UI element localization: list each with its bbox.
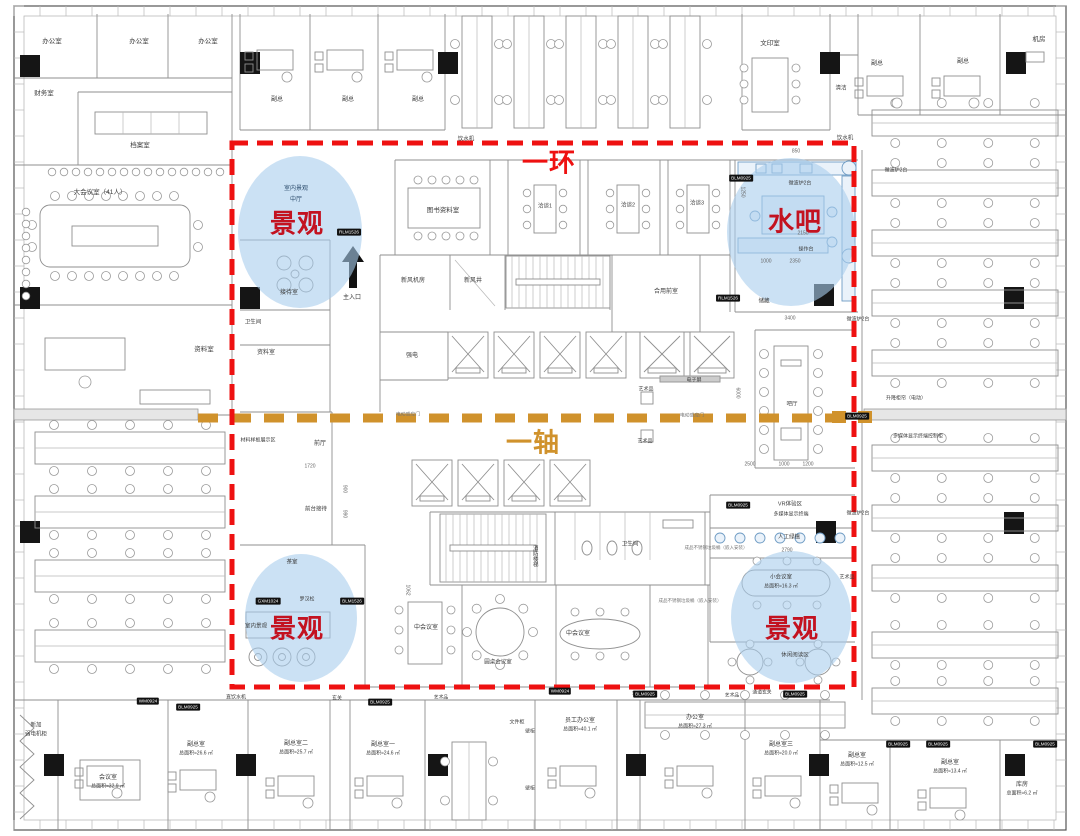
floorplan-linework (0, 0, 1080, 836)
floorplan-page: 办公室办公室办公室财务室档案室大会议室（41人）资料室副总副总副总饮水机文印室清… (0, 0, 1080, 836)
